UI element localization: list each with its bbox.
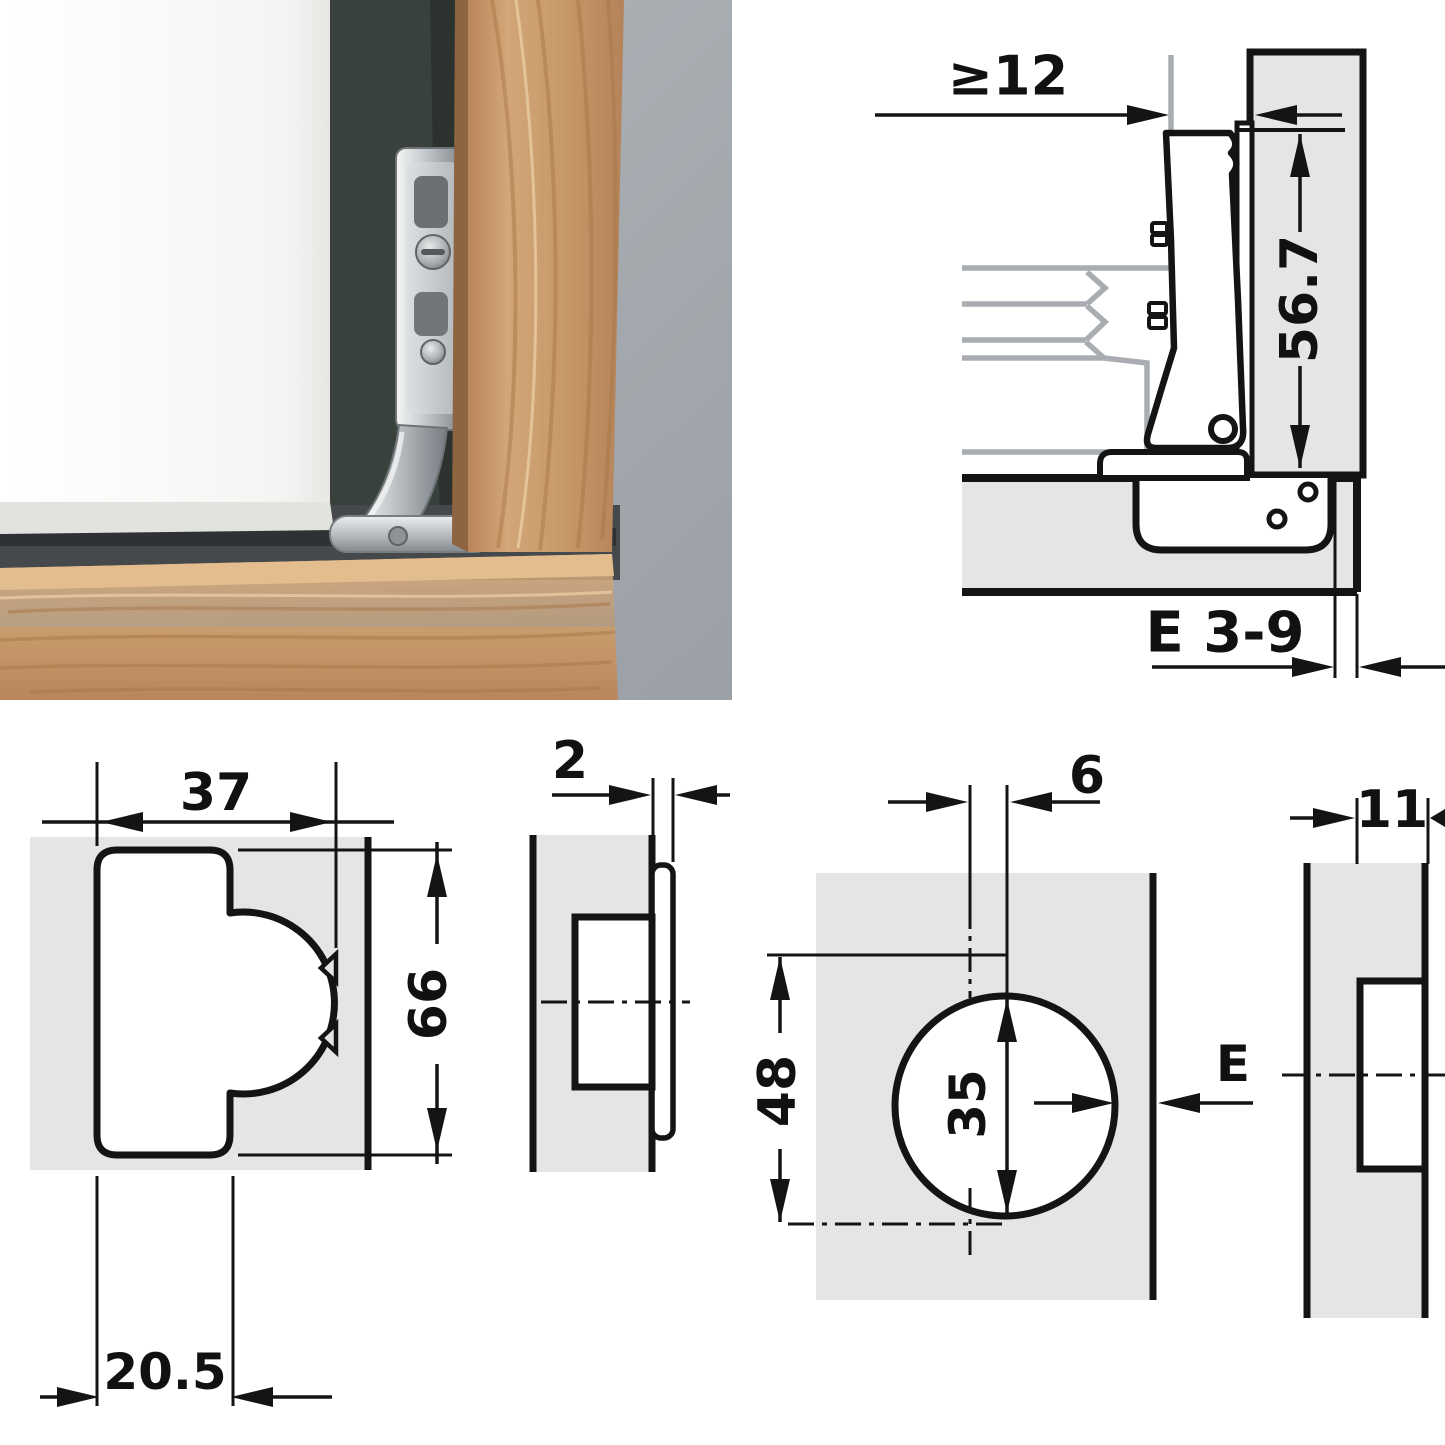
dim-label-routing-height: 66 [399,968,459,1040]
hinge-installation-sheet: ≥12 56.7 E 3-9 [0,0,1445,1445]
dim-label-routing-width: 37 [180,763,252,823]
hinge-cross-section [1100,123,1252,478]
side-view-diagram: 2 [533,731,730,1172]
dim-label-protrusion: 2 [552,731,588,791]
pivot-point [1211,417,1235,441]
routing-pattern-diagram: 37 66 20.5 [30,762,459,1407]
dim-label-plate-height: 56.7 [1270,235,1330,363]
dim-label-edge-distance: E [1216,1035,1250,1093]
dim-label-reveal: E 3-9 [1146,601,1305,666]
dim-recess-depth: 11 [1290,780,1445,864]
technical-drawings: ≥12 56.7 E 3-9 [0,0,1445,1445]
dim-label-spacing: 48 [748,1055,808,1127]
cup-screw-hole-2 [1269,511,1285,527]
hinge-foot [1100,452,1247,478]
dim-label-min-clearance: ≥12 [948,45,1068,108]
dim-label-routing-offset: 20.5 [103,1343,226,1401]
dim-label-cup-diameter: 35 [939,1069,997,1139]
cup-screw-hole-1 [1300,484,1316,500]
adjustment-screws [1149,223,1167,328]
hinge-arm-profile [1147,133,1243,448]
cross-section-diagram: ≥12 56.7 E 3-9 [875,45,1445,679]
dim-label-recess-depth: 11 [1356,780,1428,840]
dim-spacing: 48 [748,957,809,1222]
dim-routing-offset: 20.5 [40,1176,332,1407]
dim-label-center-offset: 6 [1069,746,1105,806]
drilling-pattern-diagram: 6 48 35 E [748,746,1253,1300]
edge-view-diagram: 11 [1282,780,1445,1318]
